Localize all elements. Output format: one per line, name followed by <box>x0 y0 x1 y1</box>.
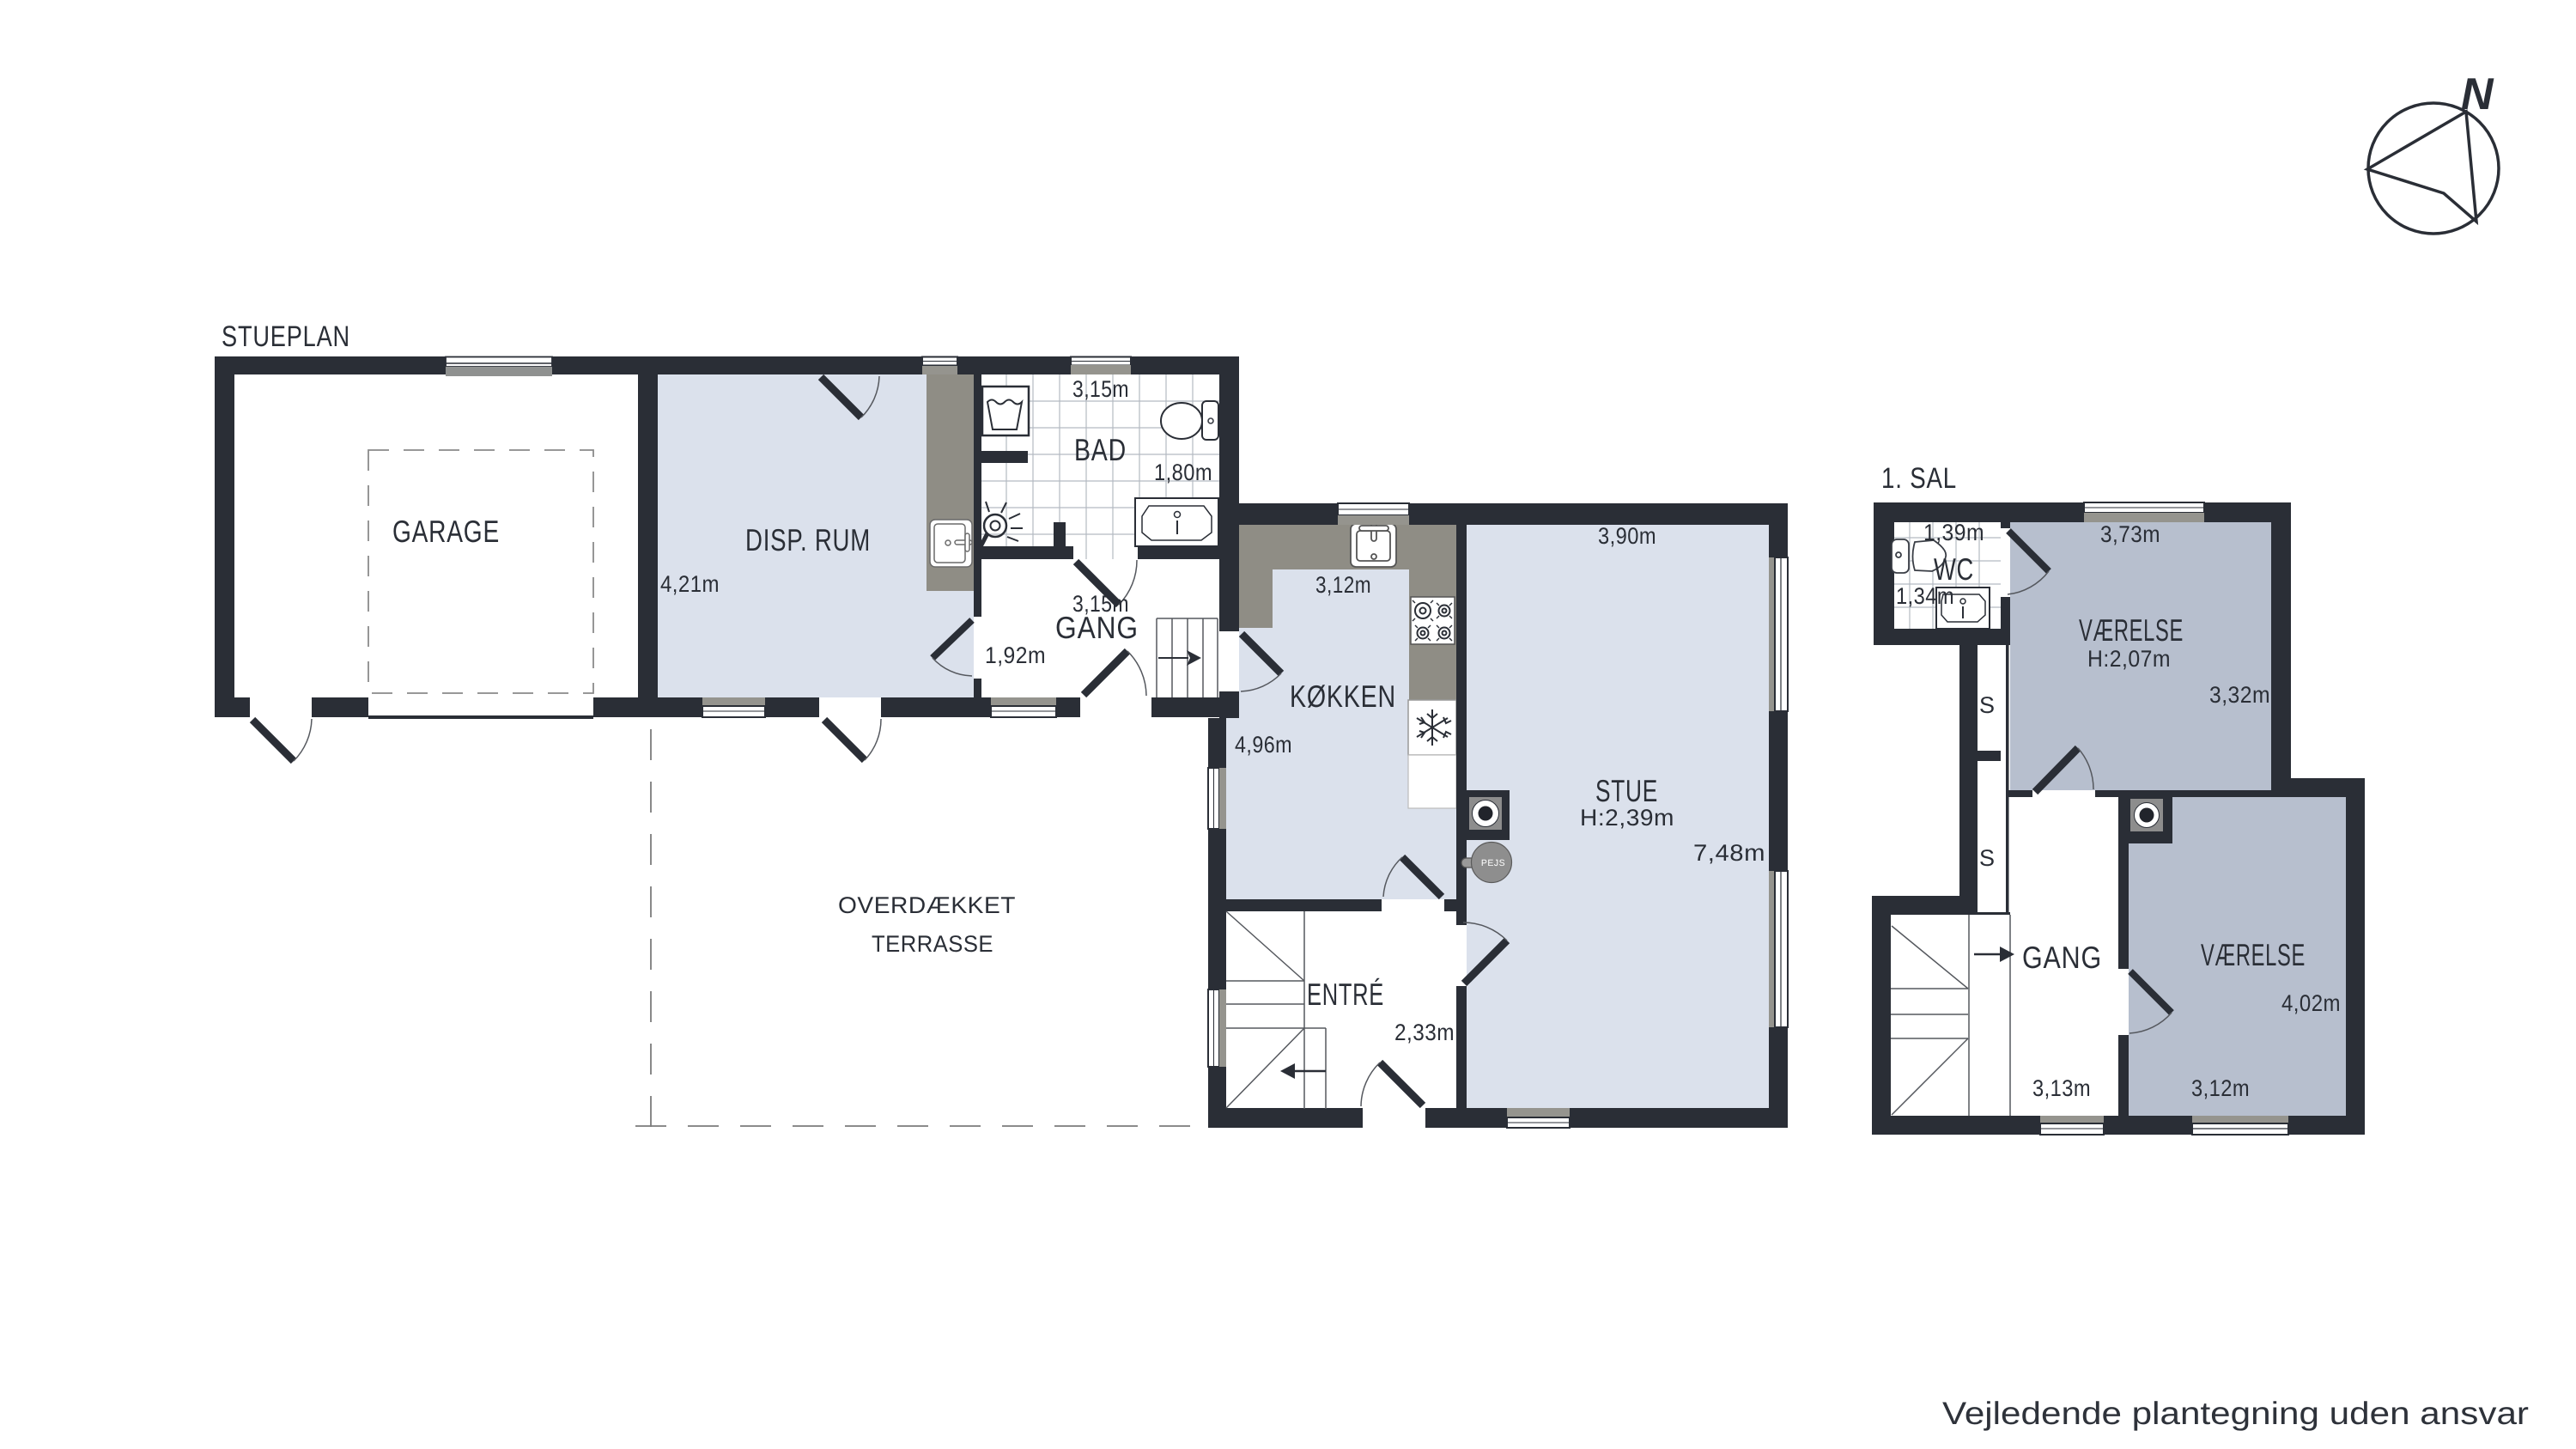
svg-text:KØKKEN: KØKKEN <box>1290 679 1396 714</box>
svg-text:1. SAL: 1. SAL <box>1881 462 1957 495</box>
svg-text:7,48m: 7,48m <box>1693 840 1765 866</box>
svg-text:1,39m: 1,39m <box>1923 520 1984 545</box>
svg-text:S: S <box>1979 845 1996 871</box>
svg-text:GARAGE: GARAGE <box>392 514 500 549</box>
svg-text:STUE: STUE <box>1595 773 1658 808</box>
svg-text:3,12m: 3,12m <box>2191 1075 2250 1101</box>
svg-text:DISP. RUM: DISP. RUM <box>745 522 871 557</box>
svg-text:S: S <box>1979 692 1996 718</box>
svg-text:VÆRELSE: VÆRELSE <box>2079 612 2184 648</box>
svg-text:TERRASSE: TERRASSE <box>872 931 993 957</box>
svg-text:OVERDÆKKET: OVERDÆKKET <box>838 892 1016 918</box>
svg-text:H:2,39m: H:2,39m <box>1580 805 1674 831</box>
svg-text:2,33m: 2,33m <box>1394 1020 1455 1045</box>
svg-text:3,73m: 3,73m <box>2100 521 2160 547</box>
svg-text:N: N <box>2461 70 2494 119</box>
svg-text:1,80m: 1,80m <box>1154 460 1212 485</box>
svg-text:3,12m: 3,12m <box>1315 572 1371 598</box>
svg-text:ENTRÉ: ENTRÉ <box>1307 977 1384 1012</box>
svg-text:1,34m: 1,34m <box>1896 583 1954 609</box>
svg-text:4,21m: 4,21m <box>660 571 720 597</box>
svg-text:GANG: GANG <box>1055 610 1139 645</box>
svg-text:BAD: BAD <box>1074 432 1127 467</box>
svg-text:GANG: GANG <box>2022 940 2102 975</box>
svg-text:4,96m: 4,96m <box>1235 732 1292 758</box>
svg-text:VÆRELSE: VÆRELSE <box>2201 937 2306 972</box>
svg-text:3,32m: 3,32m <box>2209 682 2270 708</box>
svg-text:3,90m: 3,90m <box>1598 523 1656 549</box>
svg-text:Vejledende plantegning uden an: Vejledende plantegning uden ansvar <box>1942 1396 2529 1431</box>
svg-text:PEJS: PEJS <box>1481 858 1505 868</box>
svg-text:3,13m: 3,13m <box>2032 1075 2091 1101</box>
svg-text:H:2,07m: H:2,07m <box>2087 646 2171 672</box>
svg-text:WC: WC <box>1934 551 1974 587</box>
svg-text:4,02m: 4,02m <box>2281 990 2341 1016</box>
svg-text:3,15m: 3,15m <box>1072 376 1129 402</box>
svg-text:1,92m: 1,92m <box>985 642 1046 668</box>
svg-text:STUEPLAN: STUEPLAN <box>222 320 350 353</box>
